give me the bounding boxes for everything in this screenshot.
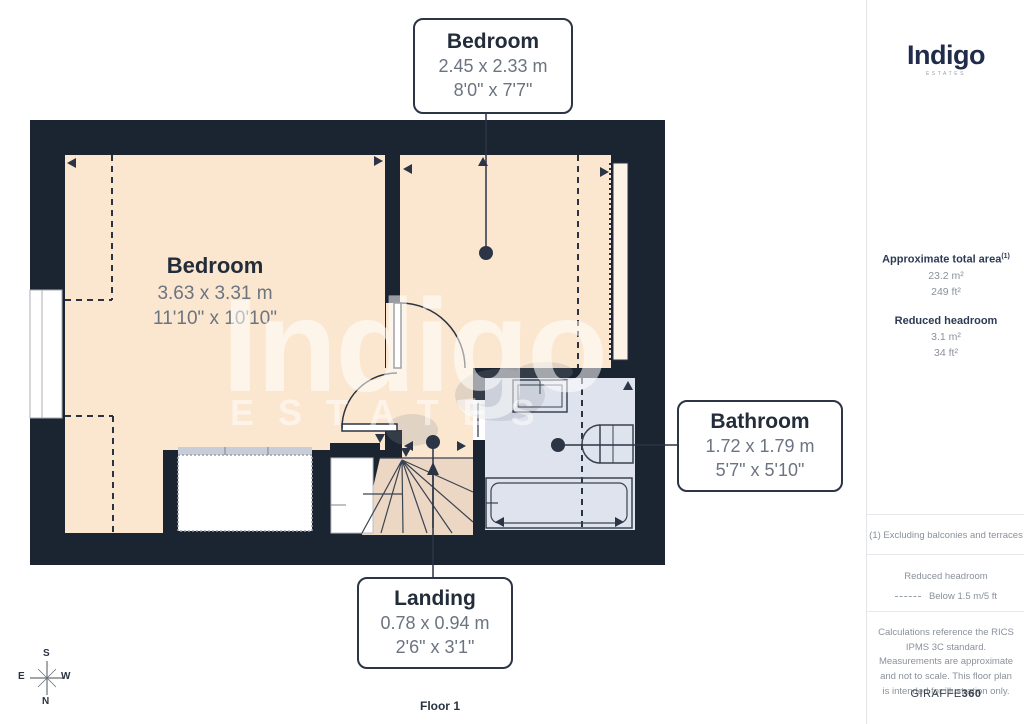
total-area-imperial: 249 ft² — [867, 284, 1024, 300]
room-label-bathroom: Bathroom 1.72 x 1.79 m 5'7" x 5'10" — [677, 400, 843, 492]
room-name: Bathroom — [710, 409, 809, 435]
room-imperial: 5'7" x 5'10" — [716, 459, 805, 483]
compass-east: E — [18, 671, 25, 682]
legend-title: Reduced headroom — [867, 571, 1024, 582]
reduced-headroom-metric: 3.1 m² — [867, 329, 1024, 345]
window-left-wall — [30, 290, 62, 418]
reduced-headroom-imperial: 34 ft² — [867, 345, 1024, 361]
total-area-footnote-ref: (1) — [1001, 253, 1010, 260]
area-summary: Approximate total area(1) 23.2 m² 249 ft… — [867, 252, 1024, 362]
info-sidebar: Indigo ESTATES Approximate total area(1)… — [866, 0, 1024, 724]
divider-wall — [385, 120, 400, 303]
room-metric: 3.63 x 3.31 m — [115, 281, 315, 306]
provider-name: GIRAFFE — [910, 688, 961, 700]
room-label-bedroom-main: Bedroom 3.63 x 3.31 m 11'10" x 10'10" — [115, 252, 315, 331]
total-area-metric: 23.2 m² — [867, 268, 1024, 284]
floorplan-page: { "floor_plan": { "floor_label": "Floor … — [0, 0, 1024, 724]
total-area-title: Approximate total area(1) — [867, 252, 1024, 268]
separator — [867, 514, 1024, 515]
separator — [867, 554, 1024, 555]
compass-north: N — [42, 696, 49, 707]
room-imperial: 8'0" x 7'7" — [454, 79, 533, 103]
bedroom-top-floor — [400, 155, 611, 368]
reduced-headroom-title: Reduced headroom — [867, 314, 1024, 329]
room-label-bedroom-top: Bedroom 2.45 x 2.33 m 8'0" x 7'7" — [413, 18, 573, 114]
room-name: Bedroom — [115, 252, 315, 281]
room-label-landing: Landing 0.78 x 0.94 m 2'6" x 3'1" — [357, 577, 513, 669]
skylight-window — [178, 447, 312, 531]
area-footnote: (1) Excluding balconies and terraces — [867, 530, 1024, 541]
eaves-storage-strip — [613, 163, 628, 360]
provider-suffix: 360 — [962, 688, 982, 700]
brand-tagline: ESTATES — [867, 71, 1024, 77]
room-name: Landing — [394, 586, 476, 612]
dashed-line-swatch — [895, 596, 921, 597]
total-area-title-text: Approximate total area — [882, 254, 1001, 266]
room-imperial: 11'10" x 10'10" — [115, 306, 315, 331]
wall-stub-landing-left — [330, 443, 380, 458]
under-stairs-void — [331, 458, 373, 533]
brand-logo: Indigo ESTATES — [867, 42, 1024, 77]
compass-star — [30, 661, 64, 695]
separator — [867, 611, 1024, 612]
compass-west: W — [61, 671, 70, 682]
brand-name: Indigo — [867, 42, 1024, 69]
stairs-floor — [362, 458, 473, 535]
room-metric: 0.78 x 0.94 m — [380, 612, 489, 636]
room-name: Bedroom — [447, 29, 539, 55]
reduced-headroom-legend: Reduced headroom Below 1.5 m/5 ft — [867, 571, 1024, 602]
legend-label: Below 1.5 m/5 ft — [929, 591, 997, 602]
provider-logo: GIRAFFE360 — [867, 688, 1024, 700]
room-imperial: 2'6" x 3'1" — [396, 636, 475, 660]
room-metric: 1.72 x 1.79 m — [705, 435, 814, 459]
compass-south: S — [43, 648, 50, 659]
room-metric: 2.45 x 2.33 m — [438, 55, 547, 79]
